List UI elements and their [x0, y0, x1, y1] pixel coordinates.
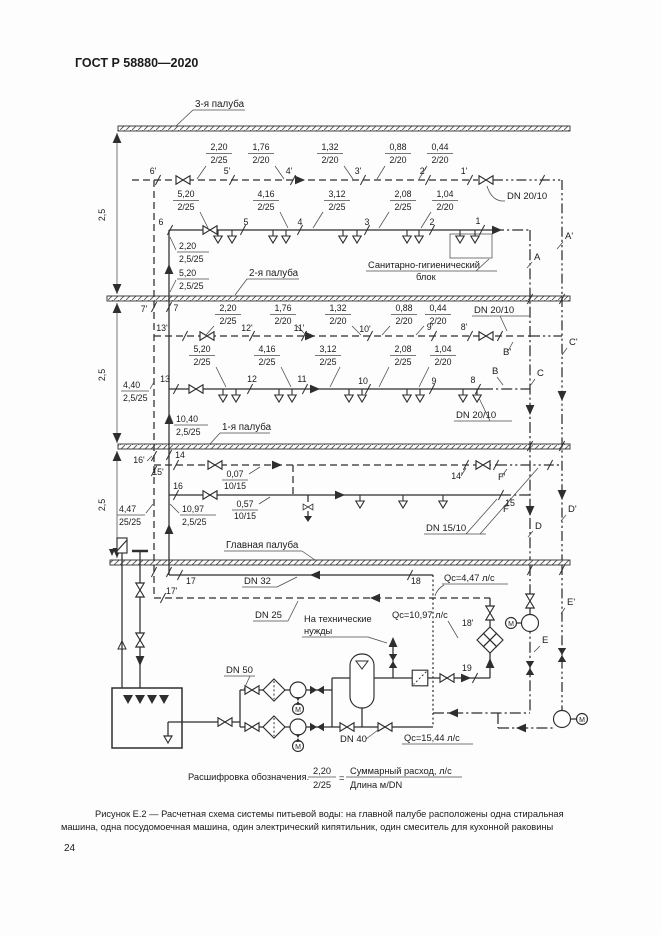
fraction-den: 2/20 [395, 316, 412, 326]
standard-title: ГОСТ Р 58880—2020 [75, 56, 198, 70]
point-label: 11 [297, 374, 306, 384]
valve-icon [479, 332, 493, 340]
point-label: 10' [359, 324, 371, 334]
pump-icon [522, 615, 539, 632]
fraction-num: 1,76 [252, 142, 269, 152]
fraction-den: 2/25 [394, 357, 411, 367]
dim-label: 2,5 [97, 209, 107, 221]
legend-top: Суммарный расход, л/с [350, 766, 452, 776]
point-label: 9 [432, 376, 437, 386]
fraction-den: 2/25 [257, 202, 274, 212]
fraction-num: 3,12 [328, 189, 345, 199]
fraction-den: 2/25 [210, 155, 227, 165]
valve-icon [526, 594, 534, 608]
fraction-den: 10/15 [234, 511, 256, 521]
point-label: 6' [150, 166, 157, 176]
valve-icon [136, 633, 144, 647]
fraction-num: 2,20 [219, 303, 236, 313]
flow-label: Qc=15,44 л/с [404, 733, 460, 743]
drain-valve-icon [303, 504, 313, 510]
legend-fraction-den: 2/25 [313, 780, 331, 790]
fraction-num: 0,88 [395, 303, 412, 313]
fraction-den: 2/20 [429, 316, 446, 326]
riser-fraction-den: 2,5/25 [182, 517, 207, 527]
fraction-den: 2/20 [274, 316, 291, 326]
point-label: 2 [430, 217, 435, 227]
motor-letter: М [579, 717, 585, 724]
point-label: 3 [365, 217, 370, 227]
fraction-den: 2/20 [321, 155, 338, 165]
fraction-den: 2/20 [389, 155, 406, 165]
tech-needs-label: нужды [304, 626, 333, 636]
dim-label: 2,5 [97, 499, 107, 511]
riser-fraction-den: 25/25 [119, 517, 141, 527]
dn-label: DN 40 [340, 734, 367, 745]
valve-icon [200, 332, 214, 340]
fraction-den: 2/25 [177, 202, 194, 212]
fraction-num: 0,44 [431, 142, 448, 152]
valve-closed-icon [526, 661, 534, 675]
sanitary-block-label: блок [416, 272, 437, 282]
riser-fraction-num: 2,20 [179, 241, 196, 251]
figure-caption: Рисунок Е.2 — Расчетная схема системы пи… [95, 809, 564, 819]
dim-label: 2,5 [97, 369, 107, 381]
point-label: 3' [355, 166, 362, 176]
point-label: 11' [294, 323, 305, 333]
point-label: 19 [462, 663, 472, 673]
deck-2 [107, 296, 570, 301]
point-label: 5' [224, 166, 231, 176]
point-label: 18' [462, 618, 474, 628]
figure-caption: машина, одна посудомоечная машина, один … [61, 822, 554, 832]
point-label: 14 [175, 450, 185, 460]
point-label: 13' [156, 323, 168, 333]
calc-point-ticks [151, 175, 564, 683]
fraction-num: 4,16 [257, 189, 274, 199]
riser-fraction-num: 4,47 [119, 504, 136, 514]
point-label: 16 [173, 481, 183, 491]
riser-fraction-den: 2,5/25 [179, 254, 204, 264]
point-label: 8 [471, 375, 476, 385]
valve-closed-icon [389, 654, 397, 668]
valve-icon [486, 606, 494, 620]
equipment [109, 234, 588, 752]
point-label: 16' [133, 455, 145, 465]
flow-label: Qc=10,97 л/с [392, 610, 448, 620]
dn-label: DN 50 [226, 665, 253, 676]
point-label: 8' [461, 322, 468, 332]
fraction-num: 5,20 [177, 189, 194, 199]
fraction-den: 2/25 [394, 202, 411, 212]
document-page: ГОСТ Р 58880—2020 3-я палуба 2-я палуба … [0, 0, 661, 935]
letter-label: F' [498, 472, 506, 483]
letter-label: A [534, 252, 541, 263]
valve-icon [476, 461, 490, 469]
riser-fraction-den: 2,5/25 [176, 427, 201, 437]
dn-label: DN 15/10 [426, 523, 466, 534]
filter-icon [263, 716, 285, 738]
tech-needs-label: На технические [304, 614, 372, 624]
uv-sterilizer-icon [477, 627, 503, 653]
point-label: 10 [358, 376, 368, 386]
riser-fraction-num: 10,97 [182, 504, 204, 514]
valve-icon [189, 385, 203, 393]
legend-equals: = [339, 773, 344, 783]
riser-fraction-num: 4,40 [123, 380, 140, 390]
fraction-num: 1,04 [434, 344, 451, 354]
letter-label: D [535, 521, 542, 532]
fraction-num: 2,20 [210, 142, 227, 152]
fraction-num: 0,88 [389, 142, 406, 152]
fraction-den: 2/25 [328, 202, 345, 212]
fraction-num: 2,08 [394, 344, 411, 354]
valve-icon [479, 176, 493, 184]
point-label: 13 [160, 374, 170, 384]
fraction-den: 2/20 [434, 357, 451, 367]
fraction-den: 2/25 [258, 357, 275, 367]
letter-label: C' [569, 337, 578, 348]
riser-fraction-den: 2,5/25 [179, 281, 204, 291]
fraction-den: 2/20 [252, 155, 269, 165]
point-label: 2' [420, 166, 427, 176]
water-tank [112, 688, 182, 748]
main-deck [110, 560, 570, 565]
vent-arrow-icon [109, 549, 115, 556]
legend-fraction-num: 2,20 [313, 766, 331, 776]
fraction-num: 0,44 [429, 303, 446, 313]
valve-icon [245, 686, 259, 694]
fraction-den: 2/25 [193, 357, 210, 367]
tank-suction-icon [164, 736, 172, 743]
motor-letter: М [508, 621, 514, 628]
fraction-den: 10/15 [224, 481, 246, 491]
fraction-num: 0,07 [226, 469, 243, 479]
riser-ap-cp-dp [493, 180, 562, 560]
dn-label: DN 32 [244, 576, 271, 587]
letter-label: A' [565, 231, 573, 242]
page-number: 24 [64, 843, 76, 854]
check-valve-icon [310, 686, 324, 694]
fraction-den: 2/20 [436, 202, 453, 212]
legend-intro: Расшифровка обозначения. [188, 772, 309, 782]
point-label: 12 [247, 374, 257, 384]
riser-fraction-den: 2,5/25 [123, 393, 148, 403]
fraction-den: 2/25 [319, 357, 336, 367]
letter-label: E' [567, 597, 575, 608]
valve-icon [203, 491, 217, 499]
fraction-num: 4,16 [258, 344, 275, 354]
letter-label: F [503, 504, 509, 515]
deck-label: 2-я палуба [249, 268, 299, 279]
tank-fill-pipes [122, 553, 140, 688]
letter-label: D' [568, 504, 577, 515]
fraction-num: 1,04 [436, 189, 453, 199]
deck-label: 3-я палуба [195, 99, 245, 110]
fraction-num: 1,76 [274, 303, 291, 313]
legend-bottom: Длина м/DN [350, 780, 402, 790]
fraction-den: 2/20 [329, 316, 346, 326]
point-label: 1' [461, 166, 468, 176]
pump-icon [554, 711, 571, 728]
riser-fraction-num: 5,20 [179, 268, 196, 278]
letter-label: B' [503, 347, 511, 358]
deck-label: 1-я палуба [222, 422, 272, 433]
point-label: 7' [141, 304, 148, 314]
point-label: 6 [159, 217, 164, 227]
valve-closed-icon [558, 648, 566, 662]
fraction-num: 3,12 [319, 344, 336, 354]
valve-icon [245, 723, 259, 731]
fraction-num: 1,32 [321, 142, 338, 152]
valve-icon [378, 723, 392, 731]
deck-1 [118, 444, 570, 449]
point-label: 5 [244, 217, 249, 227]
point-label: 12' [241, 323, 253, 333]
flow-label: Qc=4,47 л/с [444, 573, 495, 583]
fraction-den: 2/25 [219, 316, 236, 326]
hydrophore-tank [350, 654, 374, 708]
tank-spray-icons [123, 695, 169, 704]
valve-icon [340, 723, 354, 731]
point-label: 17' [166, 586, 178, 596]
fraction-den: 2/20 [431, 155, 448, 165]
dn-label: DN 20/10 [474, 305, 514, 316]
labels: ГОСТ Р 58880—2020 3-я палуба 2-я палуба … [61, 56, 585, 854]
pump-icon [290, 719, 306, 735]
fraction-num: 0,57 [236, 499, 253, 509]
letter-label: B [492, 366, 498, 377]
drain-icon [304, 516, 312, 522]
fraction-num: 1,32 [329, 303, 346, 313]
point-label: 15' [152, 467, 164, 477]
deck-3 [118, 126, 570, 131]
valve-icon [440, 674, 454, 682]
motor-letter: М [295, 707, 301, 714]
point-label: 1 [476, 216, 481, 226]
dimension-lines [113, 133, 122, 558]
fraction-num: 5,20 [193, 344, 210, 354]
dn-label: DN 25 [255, 610, 282, 621]
valve-icon [218, 718, 232, 726]
motor-letter: М [295, 744, 301, 751]
pump-icon [290, 682, 306, 698]
sanitary-block-label: Санитарно-гигиенический [368, 260, 480, 270]
point-label: 7 [174, 303, 179, 313]
valve-icon [136, 583, 144, 597]
point-label: 4 [298, 217, 303, 227]
riser-fraction-num: 10,40 [176, 414, 198, 424]
deck-label: Главная палуба [226, 540, 299, 551]
letter-label: C [537, 368, 544, 379]
point-label: 17 [186, 576, 196, 586]
check-valve-icon [310, 723, 324, 731]
letter-label: E [542, 635, 548, 646]
valve-icon [176, 176, 190, 184]
point-label: 14' [451, 471, 463, 481]
dn-label: DN 20/10 [507, 191, 547, 202]
valve-icon [203, 226, 217, 234]
piping-schematic: ГОСТ Р 58880—2020 3-я палуба 2-я палуба … [0, 0, 661, 935]
valve-icon [208, 461, 222, 469]
point-label: 18 [411, 576, 421, 586]
fraction-num: 2,08 [394, 189, 411, 199]
point-label: 4' [286, 166, 293, 176]
filter-icon [263, 679, 285, 701]
dn-label: DN 20/10 [456, 410, 496, 421]
